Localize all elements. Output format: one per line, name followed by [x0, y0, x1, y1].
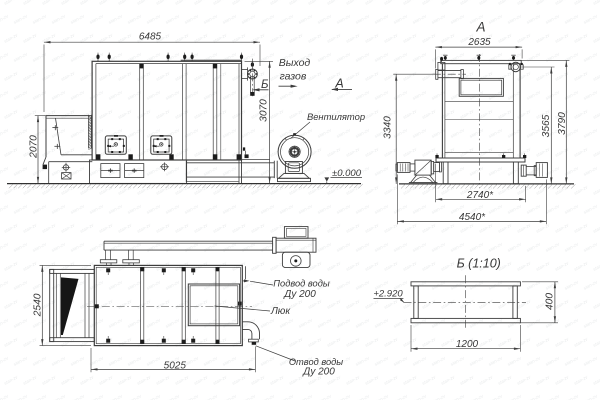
svg-text:Б (1:10): Б (1:10) [457, 256, 501, 270]
svg-text:3340: 3340 [382, 116, 393, 139]
svg-text:5025: 5025 [164, 360, 187, 371]
svg-text:2540: 2540 [32, 293, 43, 317]
svg-text:Ду 200: Ду 200 [283, 289, 316, 300]
svg-text:Вентилятор: Вентилятор [307, 111, 365, 122]
svg-text:2635: 2635 [467, 37, 491, 48]
svg-text:Подвод воды: Подвод воды [273, 279, 330, 289]
svg-text:1200: 1200 [456, 339, 479, 350]
svg-text:2070: 2070 [29, 135, 40, 159]
svg-text:400: 400 [544, 293, 555, 310]
svg-text:+2.920: +2.920 [373, 289, 403, 300]
svg-text:3070: 3070 [258, 99, 269, 122]
svg-text:3790: 3790 [557, 112, 568, 135]
svg-text:3565: 3565 [541, 114, 552, 137]
svg-text:А: А [475, 20, 485, 35]
svg-text:Люк: Люк [270, 306, 291, 317]
svg-text:6485: 6485 [139, 32, 162, 43]
svg-text:Выход: Выход [279, 57, 311, 69]
svg-text:газов: газов [280, 70, 307, 82]
svg-text:Б: Б [261, 79, 269, 91]
svg-text:2740*: 2740* [466, 190, 494, 201]
svg-text:Ду 200: Ду 200 [302, 366, 335, 377]
svg-text:4540*: 4540* [459, 212, 486, 223]
